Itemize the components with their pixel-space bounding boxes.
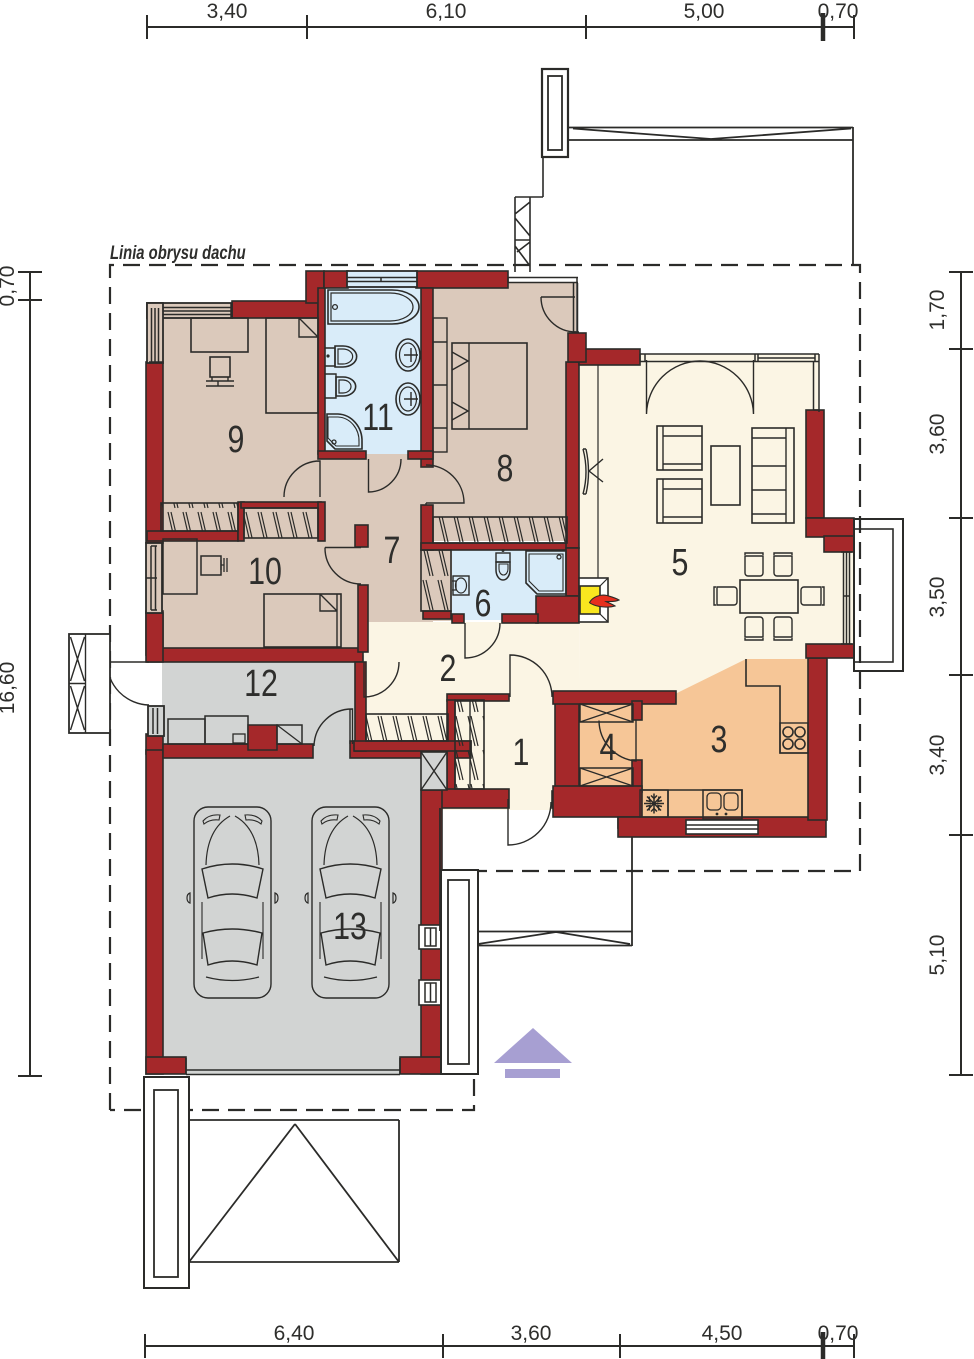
svg-text:1,70: 1,70 [926,290,949,331]
svg-text:6: 6 [475,583,492,625]
svg-text:0,70: 0,70 [818,1322,859,1345]
svg-text:6,40: 6,40 [274,1322,315,1345]
svg-text:3,60: 3,60 [926,414,949,455]
svg-text:3: 3 [711,719,728,761]
svg-text:11: 11 [362,397,394,439]
svg-text:5: 5 [672,542,689,584]
svg-text:3,60: 3,60 [511,1322,552,1345]
svg-text:3,40: 3,40 [926,735,949,776]
svg-text:0,70: 0,70 [818,0,859,23]
svg-text:5,00: 5,00 [684,0,725,23]
svg-text:4: 4 [600,727,617,769]
svg-text:8: 8 [497,448,514,490]
svg-text:13: 13 [333,906,367,948]
svg-text:Linia obrysu dachu: Linia obrysu dachu [110,242,246,263]
svg-text:0,70: 0,70 [0,266,19,307]
svg-text:1: 1 [513,732,530,774]
svg-text:10: 10 [248,551,282,593]
svg-text:3,50: 3,50 [926,577,949,618]
svg-text:16,60: 16,60 [0,662,19,715]
svg-text:7: 7 [384,530,401,572]
svg-text:3,40: 3,40 [207,0,248,23]
svg-text:12: 12 [244,663,278,705]
svg-text:2: 2 [440,648,457,690]
svg-text:4,50: 4,50 [702,1322,743,1345]
svg-text:6,10: 6,10 [426,0,467,23]
svg-text:9: 9 [228,419,245,461]
svg-text:5,10: 5,10 [926,935,949,976]
